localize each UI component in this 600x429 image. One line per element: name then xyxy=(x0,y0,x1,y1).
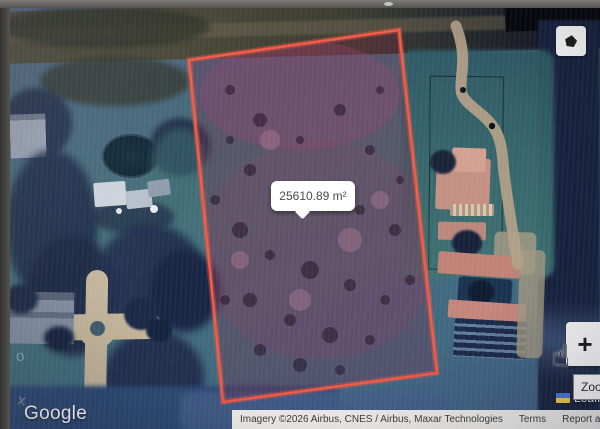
hand-cursor-icon: ☝ xyxy=(552,342,570,372)
webcam-dot xyxy=(384,2,393,6)
google-logo[interactable]: Google xyxy=(24,403,87,425)
car xyxy=(460,87,466,93)
area-value: 25610.89 m² xyxy=(279,189,346,203)
pentagon-icon xyxy=(563,33,579,49)
area-measurement-tooltip: 25610.89 m² xyxy=(271,181,355,211)
laptop-bezel-top xyxy=(0,0,600,8)
screen-photo: o x xyxy=(0,0,600,429)
zoom-in-button[interactable]: + xyxy=(566,322,600,366)
laptop-bezel-left xyxy=(0,8,10,429)
zoom-in-tooltip: Zoom in xyxy=(573,374,600,400)
zoom-tooltip-label: Zoom in xyxy=(581,380,600,394)
car xyxy=(489,123,495,129)
driveway-path xyxy=(456,26,518,264)
imagery-attribution: Imagery ©2026 Airbus, CNES / Airbus, Max… xyxy=(232,410,511,429)
polygon-tool-button[interactable] xyxy=(556,26,586,56)
plus-icon: + xyxy=(577,329,592,360)
ukraine-flag-icon xyxy=(556,393,570,403)
report-map-error-link[interactable]: Report a map error xyxy=(554,410,600,429)
terms-link[interactable]: Terms xyxy=(511,410,554,429)
attribution-bar: Imagery ©2026 Airbus, CNES / Airbus, Max… xyxy=(232,410,600,429)
